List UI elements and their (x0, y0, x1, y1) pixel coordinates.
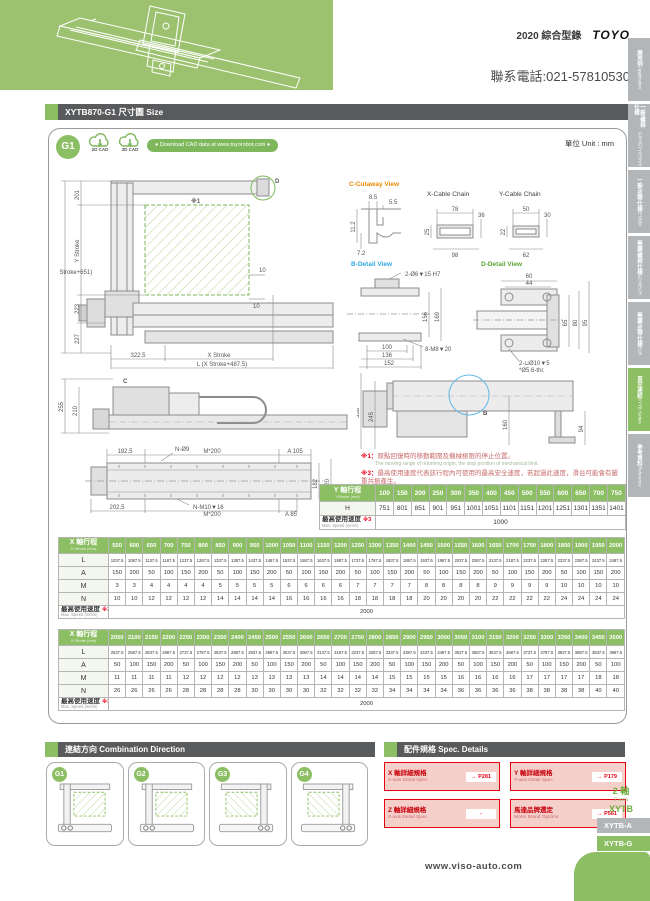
table-value: 26 (109, 685, 126, 698)
stroke-header: 2100 (126, 630, 143, 646)
table-value: 17 (521, 672, 538, 685)
table-value: 2687.5 (160, 646, 177, 659)
stroke-header: 2500 (263, 630, 280, 646)
table-value: 3787.5 (538, 646, 555, 659)
stroke-header: 1100 (298, 538, 315, 554)
table-value: 40 (590, 685, 607, 698)
spec-link-x-axis-detail-spec-[interactable]: X 軸詳細規格X-axis Detail Spec.→ P281 (384, 762, 500, 791)
stroke-header: 1000 (263, 538, 280, 554)
stroke-header: 400 (483, 485, 501, 502)
table-value: 100 (469, 659, 486, 672)
table-value: 13 (280, 672, 297, 685)
stroke-header: 1550 (452, 538, 469, 554)
stroke-header: 1450 (418, 538, 435, 554)
table-value: 1787.5 (366, 554, 383, 567)
stroke-header: 150 (393, 485, 411, 502)
table-value: 200 (504, 659, 521, 672)
table-value: 32 (332, 685, 349, 698)
tab-label-zh: 無塵/皮帶仕樣 (636, 312, 642, 347)
table-value: 4 (194, 580, 211, 593)
stroke-header: 2250 (177, 630, 194, 646)
table-value: 8 (469, 580, 486, 593)
stroke-header: 1050 (280, 538, 297, 554)
table-value: 50 (384, 659, 401, 672)
table-value: 38 (555, 685, 572, 698)
spec-label-en: Motor Brand Options (514, 815, 558, 821)
max-speed-value: 2000 (109, 698, 625, 711)
sidebar-tab-reference[interactable]: 參考資料Reference (628, 434, 650, 497)
stroke-header: 2350 (212, 630, 229, 646)
section-title-size: XYTB870-G1 尺寸圖 Size (45, 104, 628, 120)
table-value: 10 (109, 593, 126, 606)
g1-badge: G1 (56, 135, 80, 159)
table-value: 100 (298, 567, 315, 580)
stroke-header: 2050 (109, 630, 126, 646)
table-value: 1051 (483, 502, 501, 516)
sidebar-tab-gch-ech[interactable]: 無塵/螺桿仕樣GCH/ECH (628, 236, 650, 299)
cad-download-link[interactable]: ● Download CAD data at www.toyorobot.com… (147, 139, 278, 152)
stroke-table: Y 軸行程YStroke (mm)10015020025030035040045… (319, 484, 626, 530)
table-value: 50 (555, 567, 572, 580)
table-value: 50 (212, 567, 229, 580)
stroke-header: 2750 (349, 630, 366, 646)
table-value: 1587.5 (298, 554, 315, 567)
table-value: 100 (194, 659, 211, 672)
table-value: 16 (298, 593, 315, 606)
table-value: 150 (555, 659, 572, 672)
footnote-1-mark: ※1： (361, 453, 377, 460)
table-value: 26 (126, 685, 143, 698)
table-value: 3587.5 (469, 646, 486, 659)
dim-201: 201 (75, 189, 81, 200)
table-value: 1987.5 (435, 554, 452, 567)
table-value: 3737.5 (521, 646, 538, 659)
footnote-1-zh: 原點回復時的移動範圍及機械極限的停止位置。 (377, 453, 514, 460)
tab-label-en: GCH/ECH (637, 274, 642, 295)
spec-link-z-axis-detail-spec-[interactable]: Z 軸詳細規格Z-axis Detail Spec.- (384, 799, 500, 828)
combination-badge: G4 (297, 767, 312, 782)
tab-label-en: ETB/M (637, 212, 642, 226)
combination-card-g2[interactable]: G2 (128, 762, 206, 846)
dim-62: 62 (523, 253, 530, 259)
combination-section-header: 連結方向 Combination Direction (45, 742, 375, 757)
table-value: 150 (315, 567, 332, 580)
table-value: 15 (401, 672, 418, 685)
dim-65: 65 (563, 319, 569, 326)
spec-label-zh: Y 軸詳細規格 (514, 770, 554, 778)
table-value: 14 (315, 672, 332, 685)
stroke-header: 1900 (573, 538, 590, 554)
right-side-view-drawing: B 358 245 160 94 (357, 369, 595, 455)
dim-160: 160 (503, 419, 509, 430)
table-value: 34 (384, 685, 401, 698)
table-value: 1351 (590, 502, 608, 516)
dim-22: 22 (501, 228, 507, 235)
table-value: 18 (590, 672, 607, 685)
table-value: 9 (521, 580, 538, 593)
table-value: 1687.5 (332, 554, 349, 567)
table-value: 12 (194, 672, 211, 685)
table-value: 7 (349, 580, 366, 593)
table-axis-label: Y 軸行程YStroke (mm) (320, 485, 376, 502)
table-value: 6 (280, 580, 297, 593)
dim-hole-d: 2-⊔Ø10▼5 (519, 361, 550, 367)
footnote-3-zh: 最高使用速度代表該行程內可使用的最高安全速度，若超過此速度，滑台可能會有嚴重共振… (361, 470, 618, 485)
y-chain-title: Y-Cable Chain (499, 191, 541, 198)
unit-label: 單位 Unit : mm (565, 138, 614, 149)
spec-label-zh: Z 軸詳細規格 (388, 807, 428, 815)
table-value: 150 (590, 567, 607, 580)
combination-title: 連結方向 Combination Direction (58, 742, 375, 757)
table-value: 150 (384, 567, 401, 580)
cad-3d-download[interactable]: 3D CAD (115, 133, 145, 152)
dim-11-2: 11.2 (351, 221, 357, 233)
table-value: 1301 (572, 502, 590, 516)
table-value: 11 (160, 672, 177, 685)
b-detail-title: B-Detail View (351, 261, 392, 268)
table-value: 3387.5 (401, 646, 418, 659)
table-value: 200 (263, 567, 280, 580)
table-value: 1737.5 (349, 554, 366, 567)
table-value: 36 (452, 685, 469, 698)
combination-badge: G2 (134, 767, 149, 782)
table-value: 3037.5 (280, 646, 297, 659)
catalog-page: 2020 綜合型錄 TOYO 聯系電話:021-57810530 應用例Appl… (0, 0, 650, 901)
dim-98: 98 (452, 253, 459, 259)
stroke-header: 350 (465, 485, 483, 502)
max-speed-value: 2000 (109, 606, 625, 619)
stroke-header: 2850 (384, 630, 401, 646)
model-tab-xytb-g[interactable]: XYTB-G (597, 836, 650, 851)
spec-section-header: 配件規格 Spec. Details (384, 742, 625, 757)
brand-logo: TOYO (592, 28, 630, 42)
table-value: 18 (366, 593, 383, 606)
dim-223: 223 (75, 303, 81, 314)
dim-182-5: 182.5 (117, 449, 133, 455)
sidebar-tab-ecb[interactable]: 無塵/皮帶仕樣ECB (628, 302, 650, 365)
series-axes-en: 2 axis (596, 797, 646, 803)
table-value: 3 (126, 580, 143, 593)
table-value: 3537.5 (452, 646, 469, 659)
stroke-header: 1600 (469, 538, 486, 554)
dim-25: 25 (425, 228, 431, 235)
stroke-header: 500 (518, 485, 536, 502)
stroke-header: 3350 (555, 630, 572, 646)
stroke-header: 2200 (160, 630, 177, 646)
table-value: 36 (487, 685, 504, 698)
tab-label-zh: 應用例 (636, 50, 642, 67)
dim-50: 50 (523, 207, 530, 213)
tab-label-en: GTH/GTY/ETH/Y (637, 132, 642, 167)
table-value: 150 (418, 659, 435, 672)
table-value: 200 (160, 659, 177, 672)
cad-3d-label: 3D CAD (115, 147, 145, 152)
table-value: 38 (521, 685, 538, 698)
stroke-header: 3000 (435, 630, 452, 646)
stroke-header: 1700 (504, 538, 521, 554)
table-value: 8 (418, 580, 435, 593)
d-detail-title: D-Detail View (481, 261, 522, 268)
table-value: 2437.5 (590, 554, 607, 567)
stroke-header: 750 (607, 485, 625, 502)
table-value: 1437.5 (246, 554, 263, 567)
x-stroke-table-2: X 軸行程X Stroke (mm)2050210021502200225023… (58, 629, 625, 711)
max-speed-label: 最高使用速度 ※3Max. Speed (mm/s) (59, 606, 109, 619)
dim-156: 156 (423, 311, 429, 322)
stroke-header: 650 (572, 485, 590, 502)
table-value: 1837.5 (384, 554, 401, 567)
table-value: 3137.5 (315, 646, 332, 659)
stroke-header: 1950 (590, 538, 607, 554)
side-view-drawing: 255 210 C (57, 371, 351, 443)
table-value: 16 (469, 672, 486, 685)
stroke-header: 3050 (452, 630, 469, 646)
table-value: 100 (504, 567, 521, 580)
table-value: 4 (177, 580, 194, 593)
table-value: 2887.5 (229, 646, 246, 659)
dim-m200b: M*200 (203, 512, 221, 517)
table-value: 200 (332, 567, 349, 580)
table-value: 200 (607, 567, 625, 580)
dim-5-5: 5.5 (389, 200, 398, 206)
table-value: 30 (280, 685, 297, 698)
dim-322-5: 322.5 (130, 353, 146, 359)
dim-169: 169 (435, 311, 441, 322)
table-value: 2037.5 (452, 554, 469, 567)
table-value: 14 (332, 672, 349, 685)
cutaway-view-drawing: 8.5 5.5 11.2 7.2 (347, 189, 417, 261)
b-detail-drawing: 2-Ø6▼15 H7 156 169 100 136 152 8-M8▼20 (345, 269, 469, 373)
table-value: 12 (194, 593, 211, 606)
table-value: 1251 (554, 502, 572, 516)
table-value: 8 (452, 580, 469, 593)
x-chain-drawing: 78 36 25 98 (423, 199, 493, 263)
table-value: 50 (315, 659, 332, 672)
table-value: 2637.5 (143, 646, 160, 659)
table-value: 1537.5 (280, 554, 297, 567)
table-value: 9 (487, 580, 504, 593)
stroke-header: 900 (229, 538, 246, 554)
tab-label-zh: 參考資料 (636, 444, 642, 466)
table-value: 751 (376, 502, 394, 516)
stroke-header: 3200 (504, 630, 521, 646)
spec-page-ref: → P281 (466, 772, 496, 782)
cad-2d-download[interactable]: 2D CAD (85, 133, 115, 152)
table-value: 100 (126, 659, 143, 672)
max-speed-value: 1000 (376, 516, 626, 530)
tab-label-en: ECB (637, 346, 642, 355)
website-url: www.viso-auto.com (425, 861, 522, 872)
table-value: 2937.5 (246, 646, 263, 659)
table-value: 200 (366, 659, 383, 672)
table-value: 7 (384, 580, 401, 593)
sidebar-tab-xytb-series[interactable]: 直交連結XYTB Series (628, 368, 650, 431)
table-value: 1287.5 (194, 554, 211, 567)
table-value: 1187.5 (160, 554, 177, 567)
table-value: 34 (401, 685, 418, 698)
stroke-header: 3150 (487, 630, 504, 646)
green-square-marker (384, 742, 397, 757)
sidebar-tab-application[interactable]: 應用例Application (628, 38, 650, 101)
table-value: 100 (607, 659, 625, 672)
table-value: 50 (109, 659, 126, 672)
combination-card-g4[interactable]: G4 (291, 762, 369, 846)
ref-mark-1: ※1 (191, 198, 201, 205)
sidebar-tab-etb-m[interactable]: 一般/皮帶仕樣ETB/M (628, 170, 650, 233)
table-value: 18 (349, 593, 366, 606)
sidebar-tab-gth-gty-eth-y[interactable]: 一般/螺桿仕樣GTH/GTY/ETH/Y (628, 104, 650, 167)
row-label: A (59, 567, 109, 580)
catalog-year-text: 2020 綜合型錄 (516, 31, 581, 42)
plan-view-drawing: 182.5 M*200 A 105 N-Ø9 182 220 202.5 N-M… (57, 443, 351, 517)
table-value: 3637.5 (487, 646, 504, 659)
table-value: 24 (607, 593, 625, 606)
spec-page-ref: - (466, 809, 496, 819)
table-value: 6 (315, 580, 332, 593)
table-value: 3087.5 (298, 646, 315, 659)
sidebar-tabs: 應用例Application一般/螺桿仕樣GTH/GTY/ETH/Y一般/皮帶仕… (628, 38, 650, 500)
stroke-header: 800 (194, 538, 211, 554)
table-value: 10 (590, 580, 607, 593)
table-value: 16 (452, 672, 469, 685)
stroke-header: 550 (109, 538, 126, 554)
dim-78: 78 (452, 207, 459, 213)
row-label: M (59, 580, 109, 593)
table-value: 12 (143, 593, 160, 606)
dim-10a: 10 (259, 268, 266, 274)
table-value: 15 (435, 672, 452, 685)
stroke-header: 3400 (573, 630, 590, 646)
dim-m200a: M*200 (203, 449, 221, 455)
table-value: 150 (280, 659, 297, 672)
stroke-header: 3300 (538, 630, 555, 646)
table-value: 200 (229, 659, 246, 672)
tab-label-zh: 一般/皮帶仕樣 (636, 177, 642, 212)
dim-152: 152 (384, 361, 395, 367)
combination-cards: G1G2G3G4 (46, 762, 368, 846)
dim-255: 255 (59, 401, 65, 412)
table-value: 2287.5 (538, 554, 555, 567)
table-value: 150 (143, 659, 160, 672)
combination-schematic (214, 775, 280, 837)
table-value: 3437.5 (418, 646, 435, 659)
spec-title: 配件規格 Spec. Details (397, 742, 625, 757)
spec-label-en: Y-axis Detail Spec. (514, 778, 554, 784)
table-value: 2987.5 (263, 646, 280, 659)
stroke-header: 1800 (538, 538, 555, 554)
table-value: 50 (177, 659, 194, 672)
table-value: 3237.5 (349, 646, 366, 659)
stroke-header: 1850 (555, 538, 572, 554)
dim-245: 245 (369, 411, 375, 422)
table-value: 200 (298, 659, 315, 672)
dim-7-2: 7.2 (357, 251, 366, 257)
stroke-header: 100 (376, 485, 394, 502)
table-value: 36 (469, 685, 486, 698)
table-value: 2137.5 (487, 554, 504, 567)
dim-136: 136 (382, 353, 393, 359)
table-value: 38 (573, 685, 590, 698)
table-value: 12 (212, 672, 229, 685)
table-value: 200 (435, 659, 452, 672)
table-value: 100 (229, 567, 246, 580)
table-value: 2187.5 (504, 554, 521, 567)
table-value: 200 (194, 567, 211, 580)
stroke-header: 1650 (487, 538, 504, 554)
table-value: 851 (411, 502, 429, 516)
table-value: 2837.5 (212, 646, 229, 659)
dim-xstroke: X Stroke (207, 353, 231, 359)
y-chain-drawing: 50 30 22 62 (495, 199, 565, 263)
table-value: 150 (349, 659, 366, 672)
table-value: 10 (555, 580, 572, 593)
dimension-card: G1 2D CAD 3D CAD ● Download CAD data at … (48, 128, 627, 724)
table-value: 5 (229, 580, 246, 593)
table-value: 38 (538, 685, 555, 698)
footnote-3-mark: ※3： (361, 470, 377, 477)
table-value: 50 (521, 659, 538, 672)
table-value: 50 (143, 567, 160, 580)
table-value: 2087.5 (469, 554, 486, 567)
spec-label-en: X-axis Detail Spec. (388, 778, 429, 784)
table-value: 100 (160, 567, 177, 580)
combination-badge: G1 (52, 767, 67, 782)
table-value: 100 (538, 659, 555, 672)
table-value: 7 (366, 580, 383, 593)
table-value: 10 (573, 580, 590, 593)
table-value: 13 (246, 672, 263, 685)
table-value: 4 (143, 580, 160, 593)
stroke-header: 2800 (366, 630, 383, 646)
dim-tap-b: 8-M8▼20 (425, 347, 452, 353)
stroke-table: X 軸行程X Stroke (mm)2050210021502200225023… (58, 629, 625, 711)
row-label: L (59, 554, 109, 567)
stroke-header: 2550 (280, 630, 297, 646)
table-value: 18 (607, 672, 625, 685)
spec-label-zh: X 軸詳細規格 (388, 770, 429, 778)
table-value: 3 (109, 580, 126, 593)
combination-card-g1[interactable]: G1 (46, 762, 124, 846)
row-label: M (59, 672, 109, 685)
stroke-header: 650 (143, 538, 160, 554)
table-value: 26 (143, 685, 160, 698)
table-value: 9 (538, 580, 555, 593)
table-value: 17 (573, 672, 590, 685)
table-value: 5 (246, 580, 263, 593)
table-value: 9 (504, 580, 521, 593)
table-value: 1037.5 (109, 554, 126, 567)
table-value: 200 (573, 659, 590, 672)
contact-phone: 聯系電話:021-57810530 (440, 66, 630, 85)
table-value: 7 (401, 580, 418, 593)
dim-358: 358 (357, 407, 361, 418)
dim-10b: 10 (253, 304, 260, 310)
dim-100: 100 (382, 345, 393, 351)
dim-a85: A 85 (285, 512, 298, 517)
tab-label-en: Application (637, 67, 642, 89)
combination-card-g3[interactable]: G3 (209, 762, 287, 846)
table-value: 12 (177, 593, 194, 606)
cad-2d-label: 2D CAD (85, 147, 115, 152)
table-value: 2537.5 (109, 646, 126, 659)
model-tab-xytb-a[interactable]: XYTB-A (597, 818, 650, 833)
table-value: 40 (607, 685, 625, 698)
stroke-header: 200 (411, 485, 429, 502)
stroke-header: 3500 (607, 630, 625, 646)
row-label: L (59, 646, 109, 659)
table-value: 1387.5 (229, 554, 246, 567)
table-value: 3687.5 (504, 646, 521, 659)
